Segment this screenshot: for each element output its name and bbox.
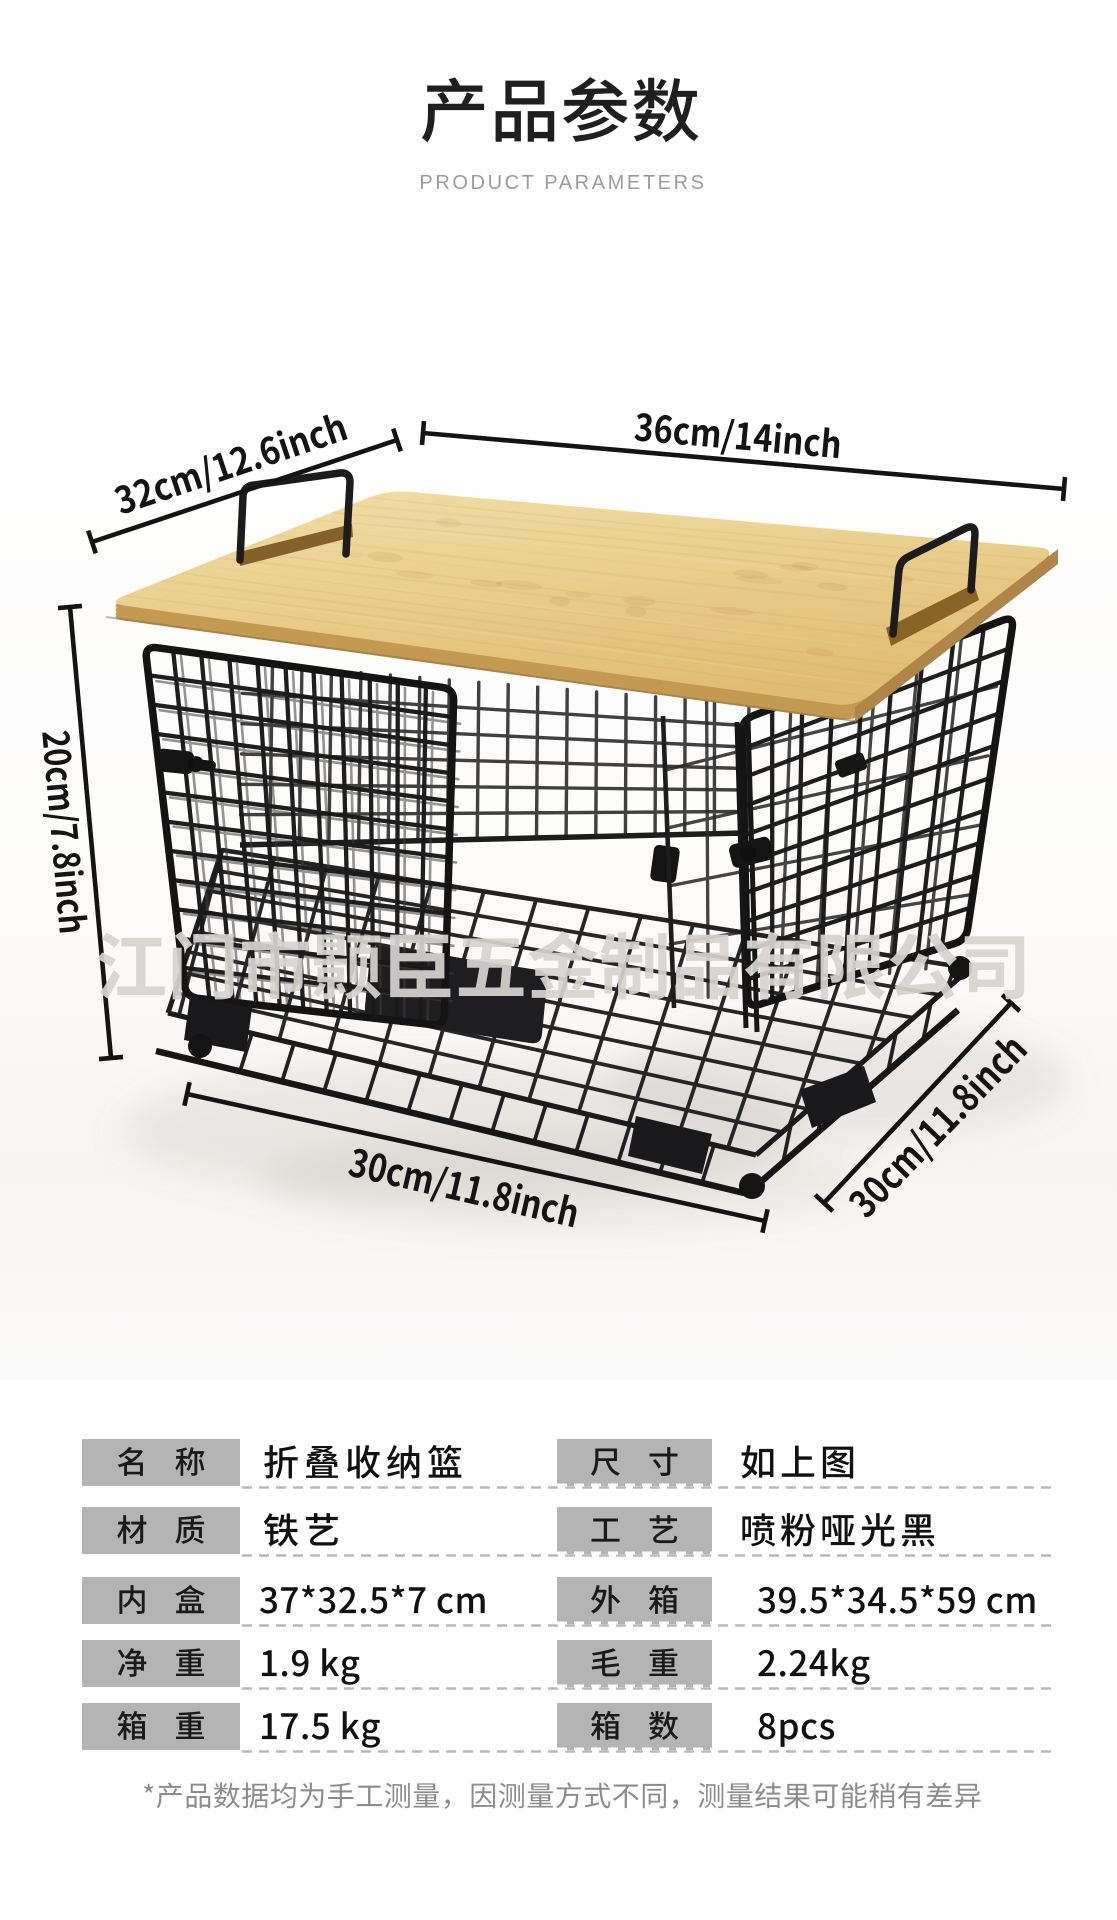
svg-text:PRODUCT PARAMETERS: PRODUCT PARAMETERS bbox=[419, 172, 706, 194]
